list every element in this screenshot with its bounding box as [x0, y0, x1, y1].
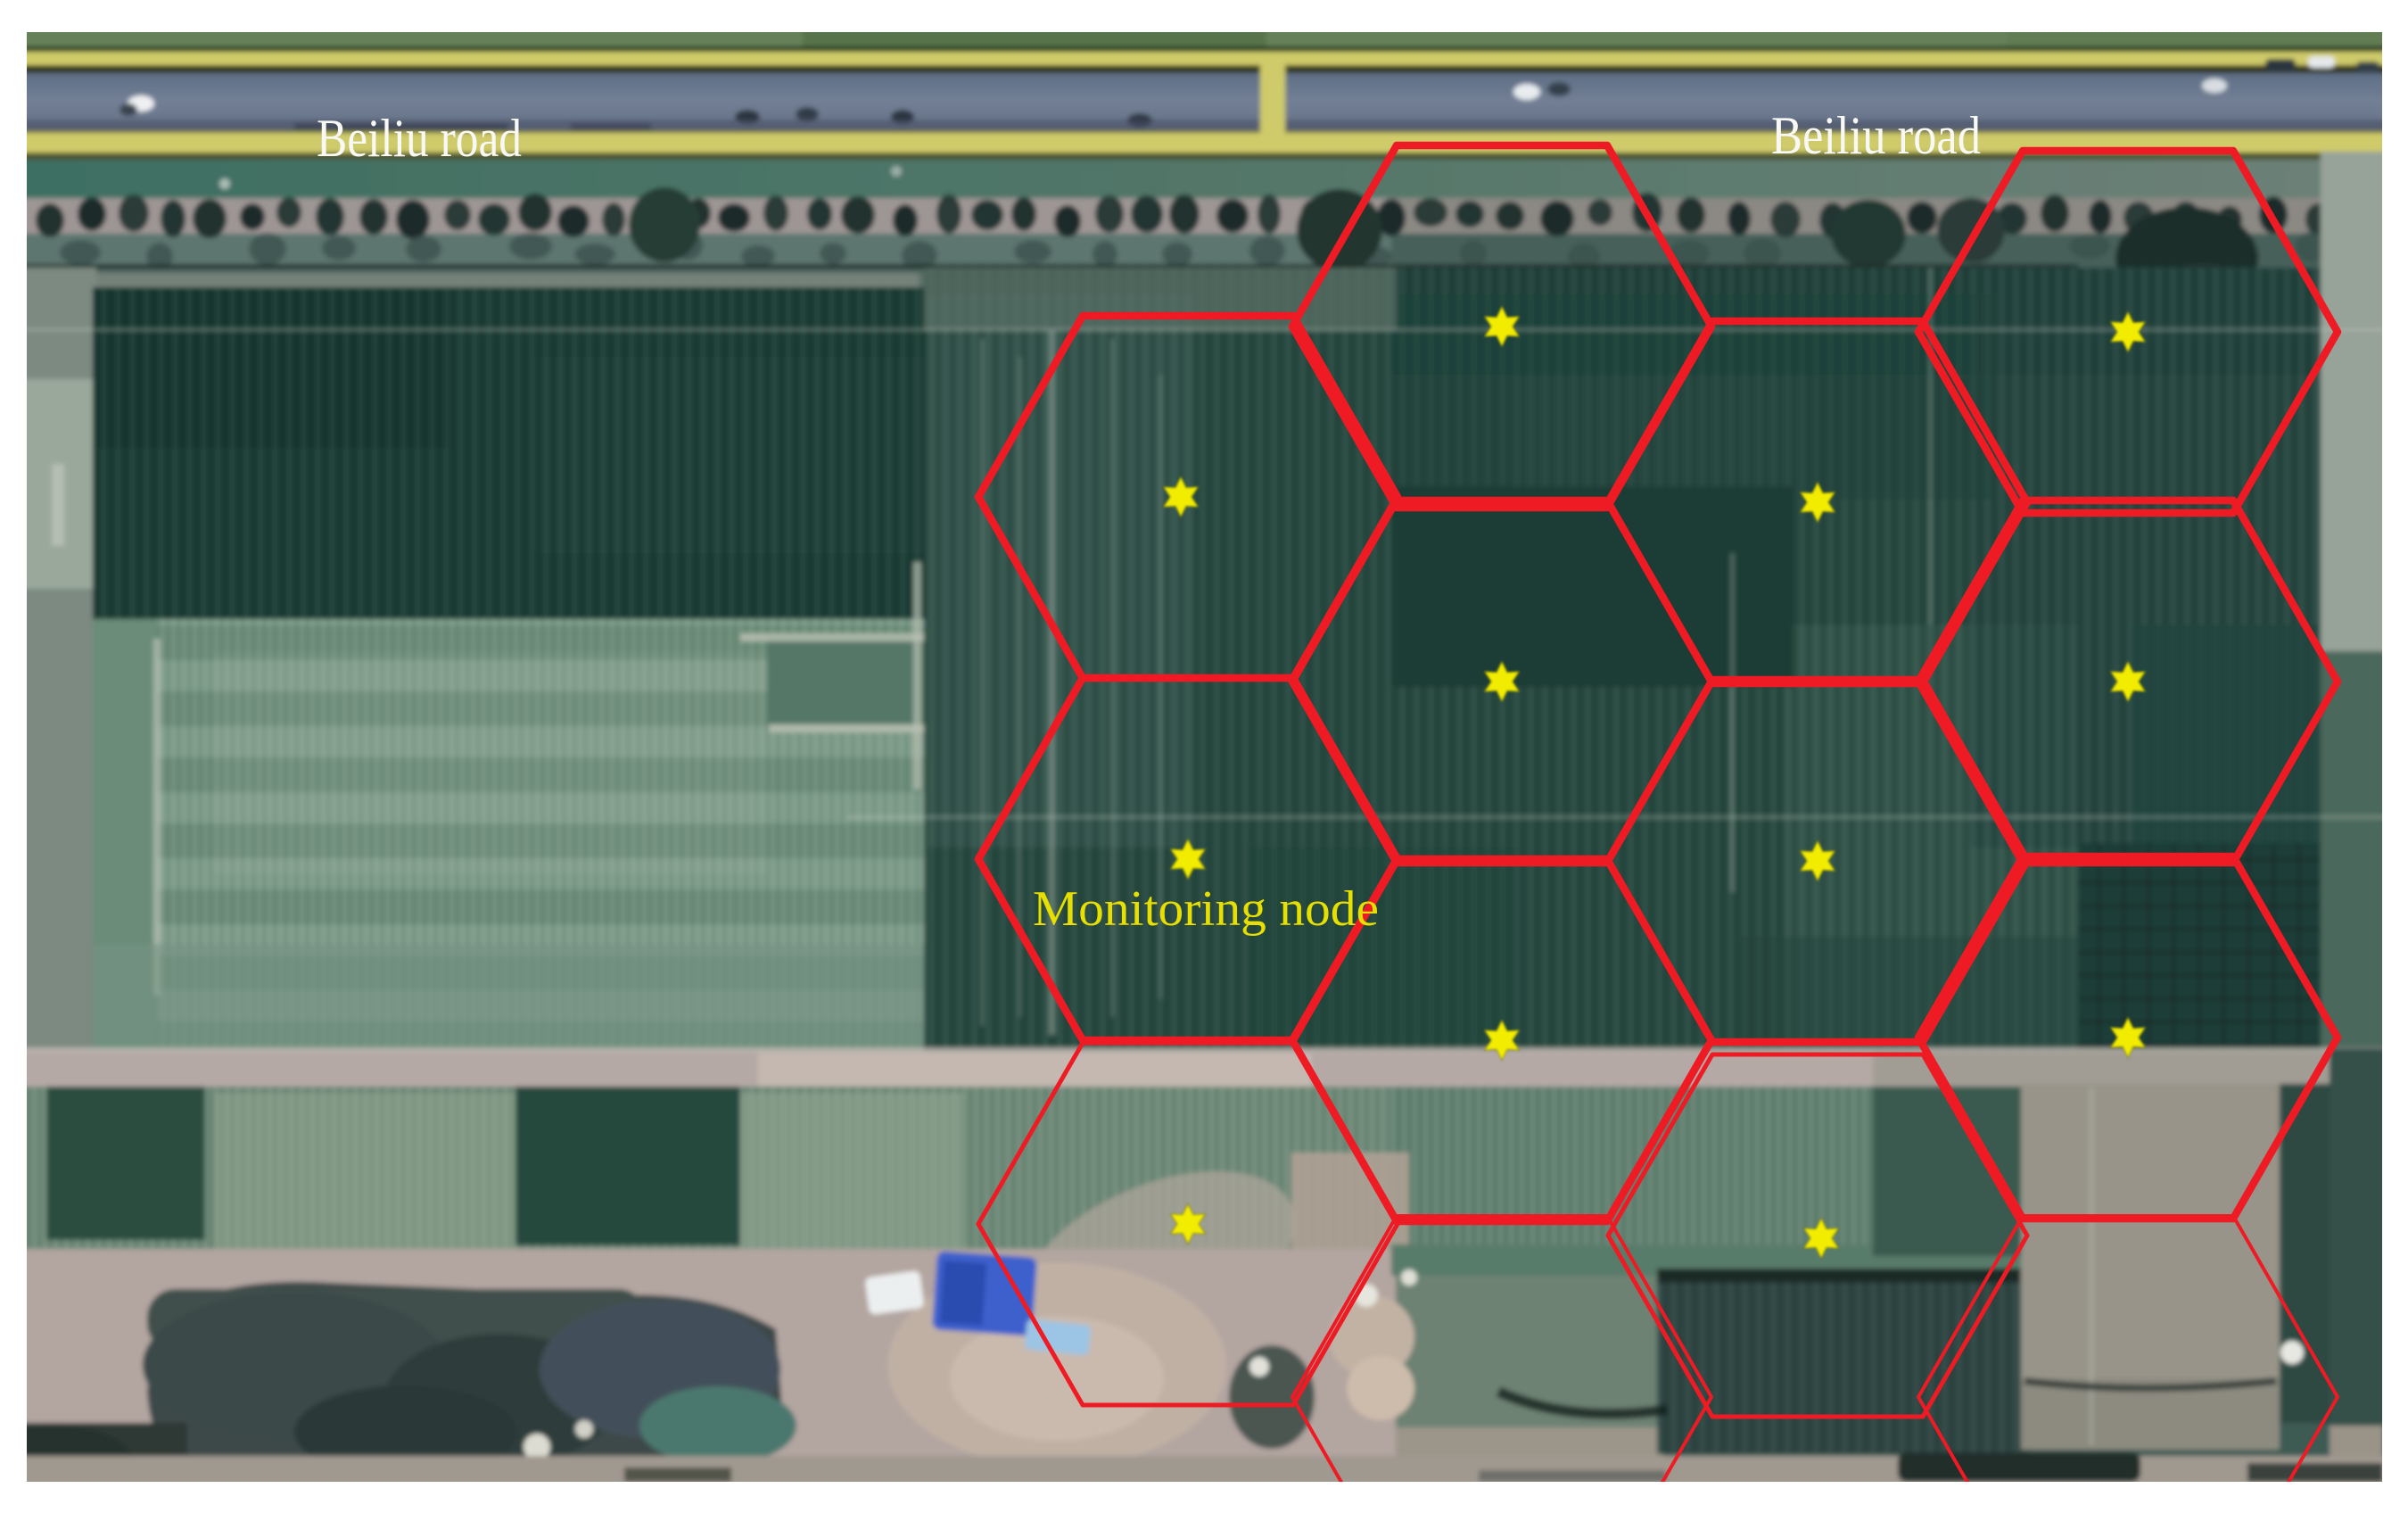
svg-text:Beiliu road: Beiliu road — [317, 109, 522, 168]
svg-text:Monitoring node: Monitoring node — [1033, 881, 1379, 937]
svg-text:Beiliu road: Beiliu road — [1771, 106, 1981, 165]
